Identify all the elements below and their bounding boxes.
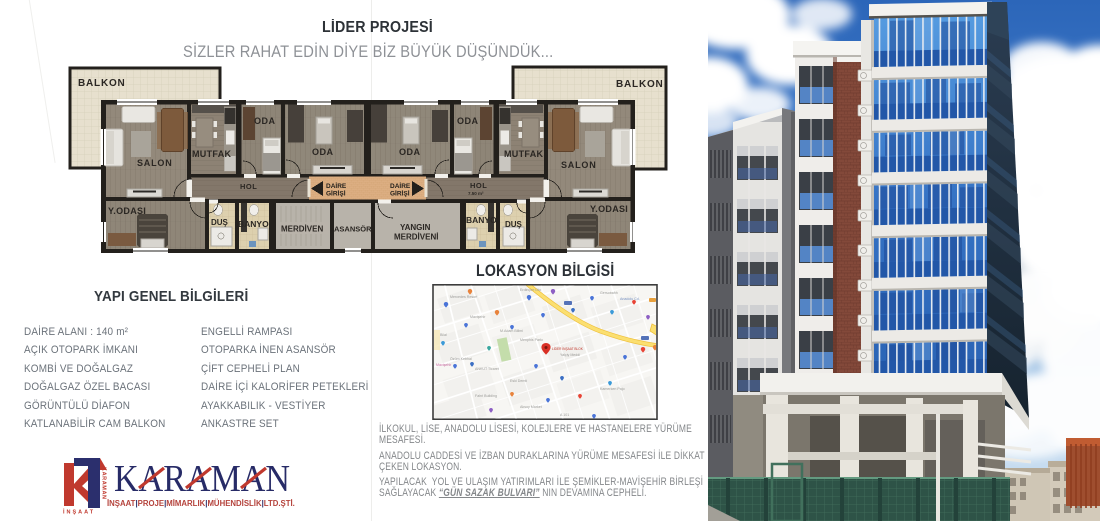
svg-text:ODA: ODA — [399, 147, 421, 157]
svg-text:7.50 m²: 7.50 m² — [468, 191, 484, 196]
svg-text:DAİRE: DAİRE — [390, 182, 411, 190]
svg-text:Mercedes Resort: Mercedes Resort — [450, 295, 477, 299]
svg-text:ANKUT Ticaret: ANKUT Ticaret — [475, 367, 499, 371]
svg-text:Mavişehir: Mavişehir — [436, 363, 452, 367]
svg-text:Eski Demti: Eski Demti — [510, 379, 527, 383]
svg-text:Anadolu Cd.: Anadolu Cd. — [620, 297, 640, 301]
svg-text:MERDİVEN: MERDİVEN — [281, 225, 323, 234]
svg-text:GİRİŞİ: GİRİŞİ — [326, 190, 346, 198]
svg-text:DAİRE: DAİRE — [326, 182, 347, 190]
svg-text:BANYO: BANYO — [238, 219, 269, 229]
svg-text:YANGIN: YANGIN — [400, 223, 431, 232]
svg-text:BANYO: BANYO — [466, 215, 497, 225]
svg-text:SALON: SALON — [561, 160, 597, 170]
svg-text:KARAMAN: KARAMAN — [101, 467, 107, 500]
svg-text:ODA: ODA — [312, 147, 334, 157]
svg-text:A 101: A 101 — [560, 413, 569, 417]
svg-text:Y.ODASI: Y.ODASI — [590, 204, 628, 214]
svg-text:Menphis Parkı: Menphis Parkı — [520, 338, 543, 342]
svg-text:Fahri Building: Fahri Building — [475, 394, 497, 398]
svg-text:DUŞ: DUŞ — [505, 220, 523, 229]
svg-text:KARAMAN: KARAMAN — [114, 458, 290, 500]
svg-text:İNŞAAT: İNŞAAT — [63, 509, 95, 516]
svg-text:Mavişehir: Mavişehir — [470, 315, 486, 319]
svg-text:Kamerken Pajo: Kamerken Pajo — [600, 387, 625, 391]
svg-text:BALKON: BALKON — [616, 79, 664, 90]
svg-text:HOL: HOL — [470, 181, 487, 190]
svg-text:LİDER İNŞAAT BLOK: LİDER İNŞAAT BLOK — [552, 346, 584, 351]
svg-text:MERDİVENİ: MERDİVENİ — [394, 233, 438, 242]
svg-text:İNŞAAT|PROJE|MİMARLIK|MÜHENDİS: İNŞAAT|PROJE|MİMARLIK|MÜHENDİSLİK|LTD.ŞT… — [107, 499, 295, 508]
svg-text:SALON: SALON — [137, 158, 173, 168]
svg-text:Aksoy Market: Aksoy Market — [520, 405, 542, 409]
svg-text:M.Adam Bilimi: M.Adam Bilimi — [500, 329, 523, 333]
svg-text:ODA: ODA — [457, 116, 479, 126]
svg-text:Yalçiy Meddi: Yalçiy Meddi — [560, 353, 580, 357]
svg-text:Gersobahh: Gersobahh — [600, 291, 618, 295]
svg-text:Y.ODASI: Y.ODASI — [108, 206, 146, 216]
svg-text:ODA: ODA — [254, 116, 276, 126]
svg-text:Erdinçler Oto: Erdinçler Oto — [520, 288, 541, 292]
svg-text:BALKON: BALKON — [78, 78, 126, 89]
svg-text:GİRİŞİ: GİRİŞİ — [390, 190, 410, 198]
svg-text:Özüm Kebhal: Özüm Kebhal — [450, 357, 472, 361]
svg-text:DUŞ: DUŞ — [211, 218, 229, 227]
svg-text:MUTFAK: MUTFAK — [504, 149, 543, 159]
svg-text:ASANSÖR: ASANSÖR — [334, 225, 372, 234]
svg-text:Bilal: Bilal — [440, 333, 447, 337]
svg-text:MUTFAK: MUTFAK — [192, 149, 231, 159]
svg-text:HOL: HOL — [240, 182, 257, 191]
